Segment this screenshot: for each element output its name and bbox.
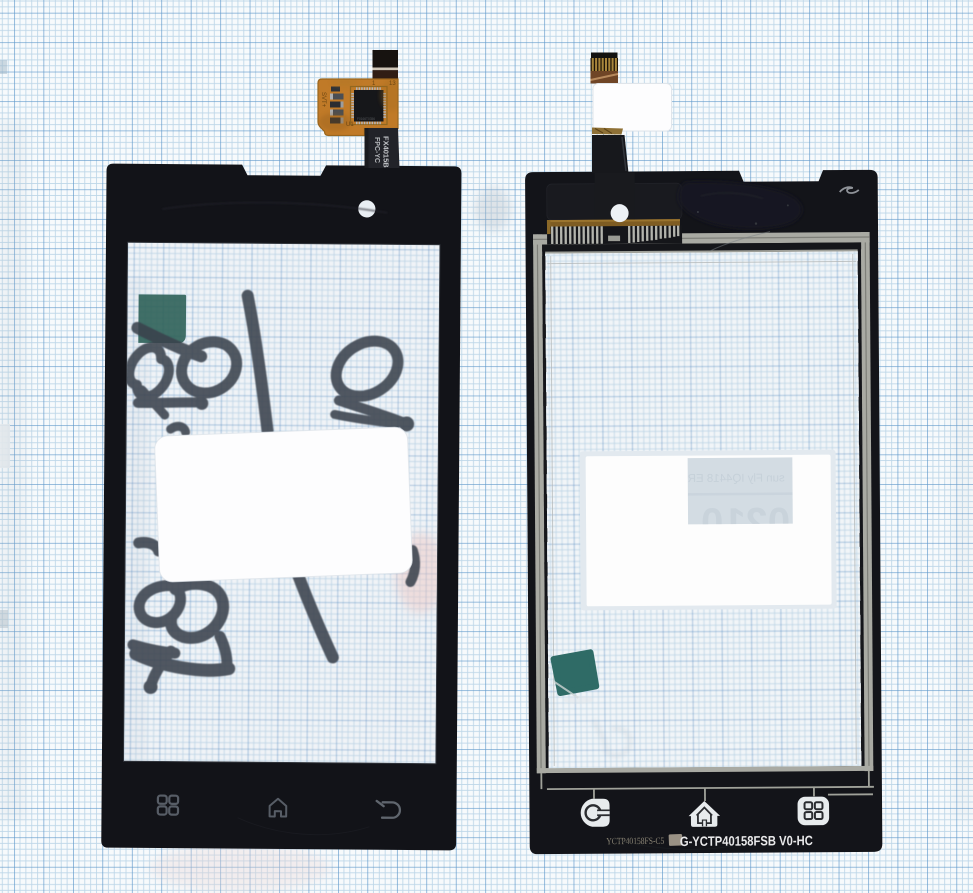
svg-text:13: 13 [389, 81, 396, 87]
svg-text:YCTP40158FS-C5: YCTP40158FS-C5 [606, 837, 664, 847]
svg-text:G-YCTP40158FSB V0-HC: G-YCTP40158FSB V0-HC [680, 833, 813, 849]
svg-text:SVT+: SVT+ [320, 92, 326, 108]
svg-text:FPC-YC: FPC-YC [373, 137, 380, 163]
svg-text:U1: U1 [346, 122, 354, 128]
svg-text:sun Fly IQ4418 ERA: sun Fly IQ4418 ERA [680, 472, 785, 485]
svg-text:F0166T0356: F0166T0356 [357, 117, 375, 121]
svg-text:FX4015B: FX4015B [382, 136, 391, 168]
